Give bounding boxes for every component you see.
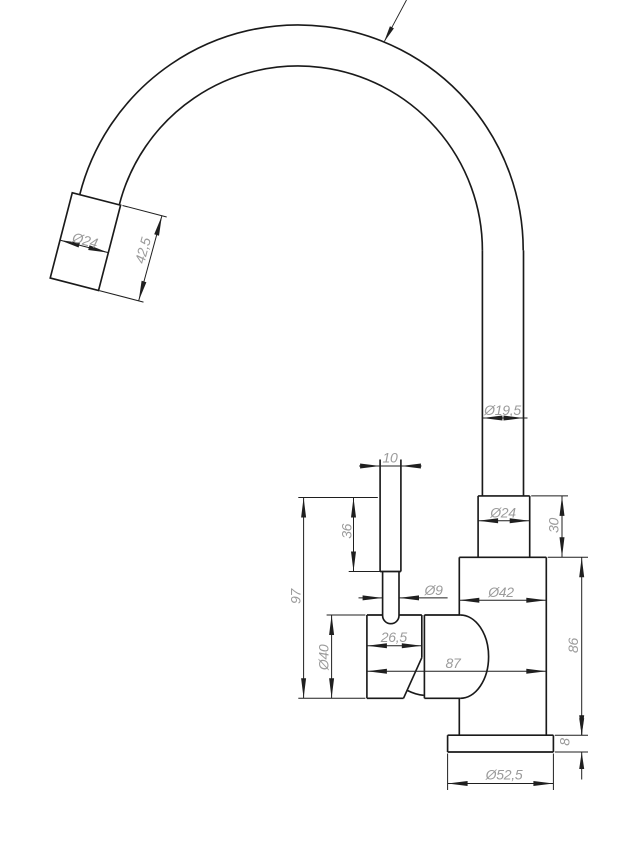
svg-text:97: 97 bbox=[288, 588, 304, 604]
svg-text:Ø42: Ø42 bbox=[487, 584, 514, 600]
svg-text:Ø9: Ø9 bbox=[424, 582, 444, 598]
svg-text:Ø24: Ø24 bbox=[70, 229, 100, 251]
svg-text:42,5: 42,5 bbox=[132, 235, 154, 265]
svg-text:87: 87 bbox=[446, 655, 462, 671]
svg-text:Ø52,5: Ø52,5 bbox=[485, 767, 523, 783]
svg-text:Ø19,5: Ø19,5 bbox=[483, 402, 521, 418]
svg-text:86: 86 bbox=[565, 638, 581, 653]
svg-text:Ø40: Ø40 bbox=[316, 644, 332, 671]
svg-text:30: 30 bbox=[546, 518, 562, 533]
svg-text:26,5: 26,5 bbox=[380, 629, 408, 645]
svg-text:Ø24: Ø24 bbox=[489, 504, 516, 520]
svg-text:8: 8 bbox=[557, 738, 573, 746]
svg-text:36: 36 bbox=[339, 523, 355, 538]
svg-text:10: 10 bbox=[383, 450, 398, 466]
